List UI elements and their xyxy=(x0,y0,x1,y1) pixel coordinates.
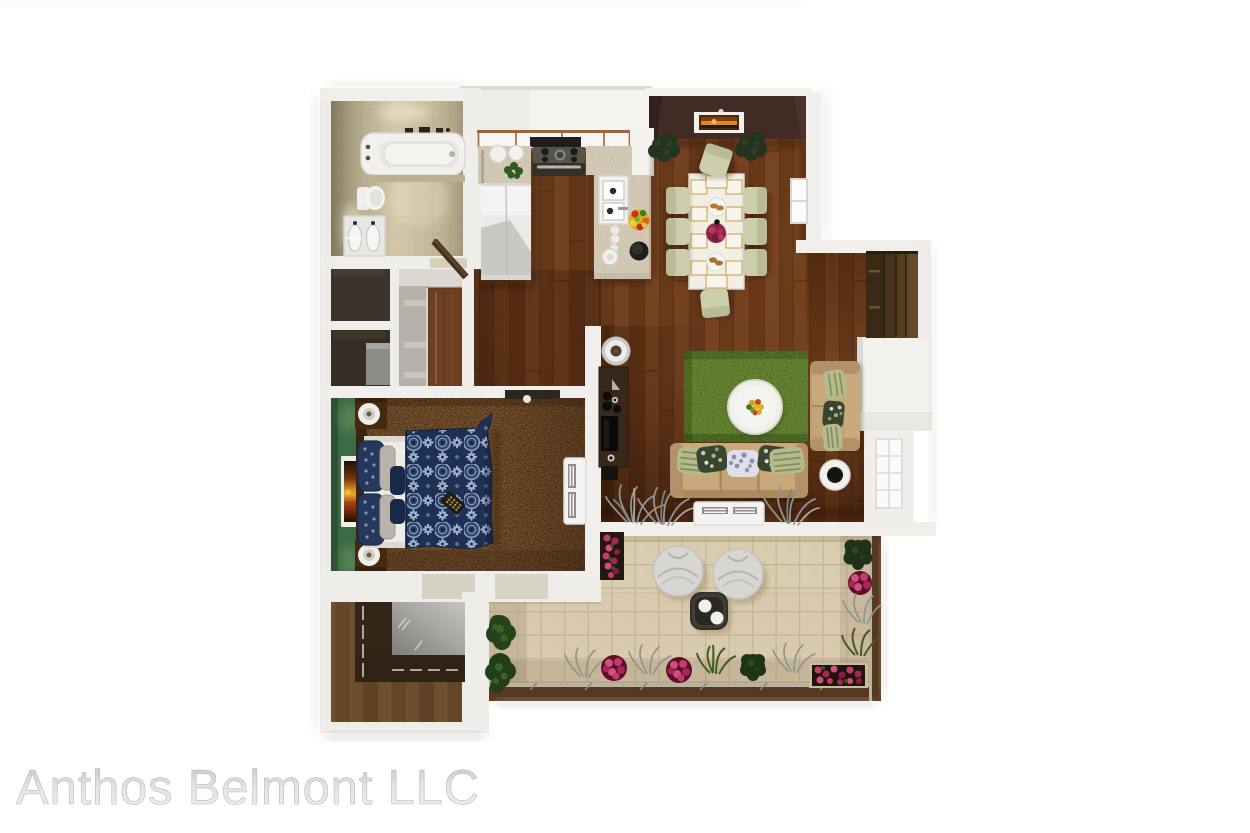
svg-text:Anthos Belmont LLC: Anthos Belmont LLC xyxy=(16,761,480,815)
